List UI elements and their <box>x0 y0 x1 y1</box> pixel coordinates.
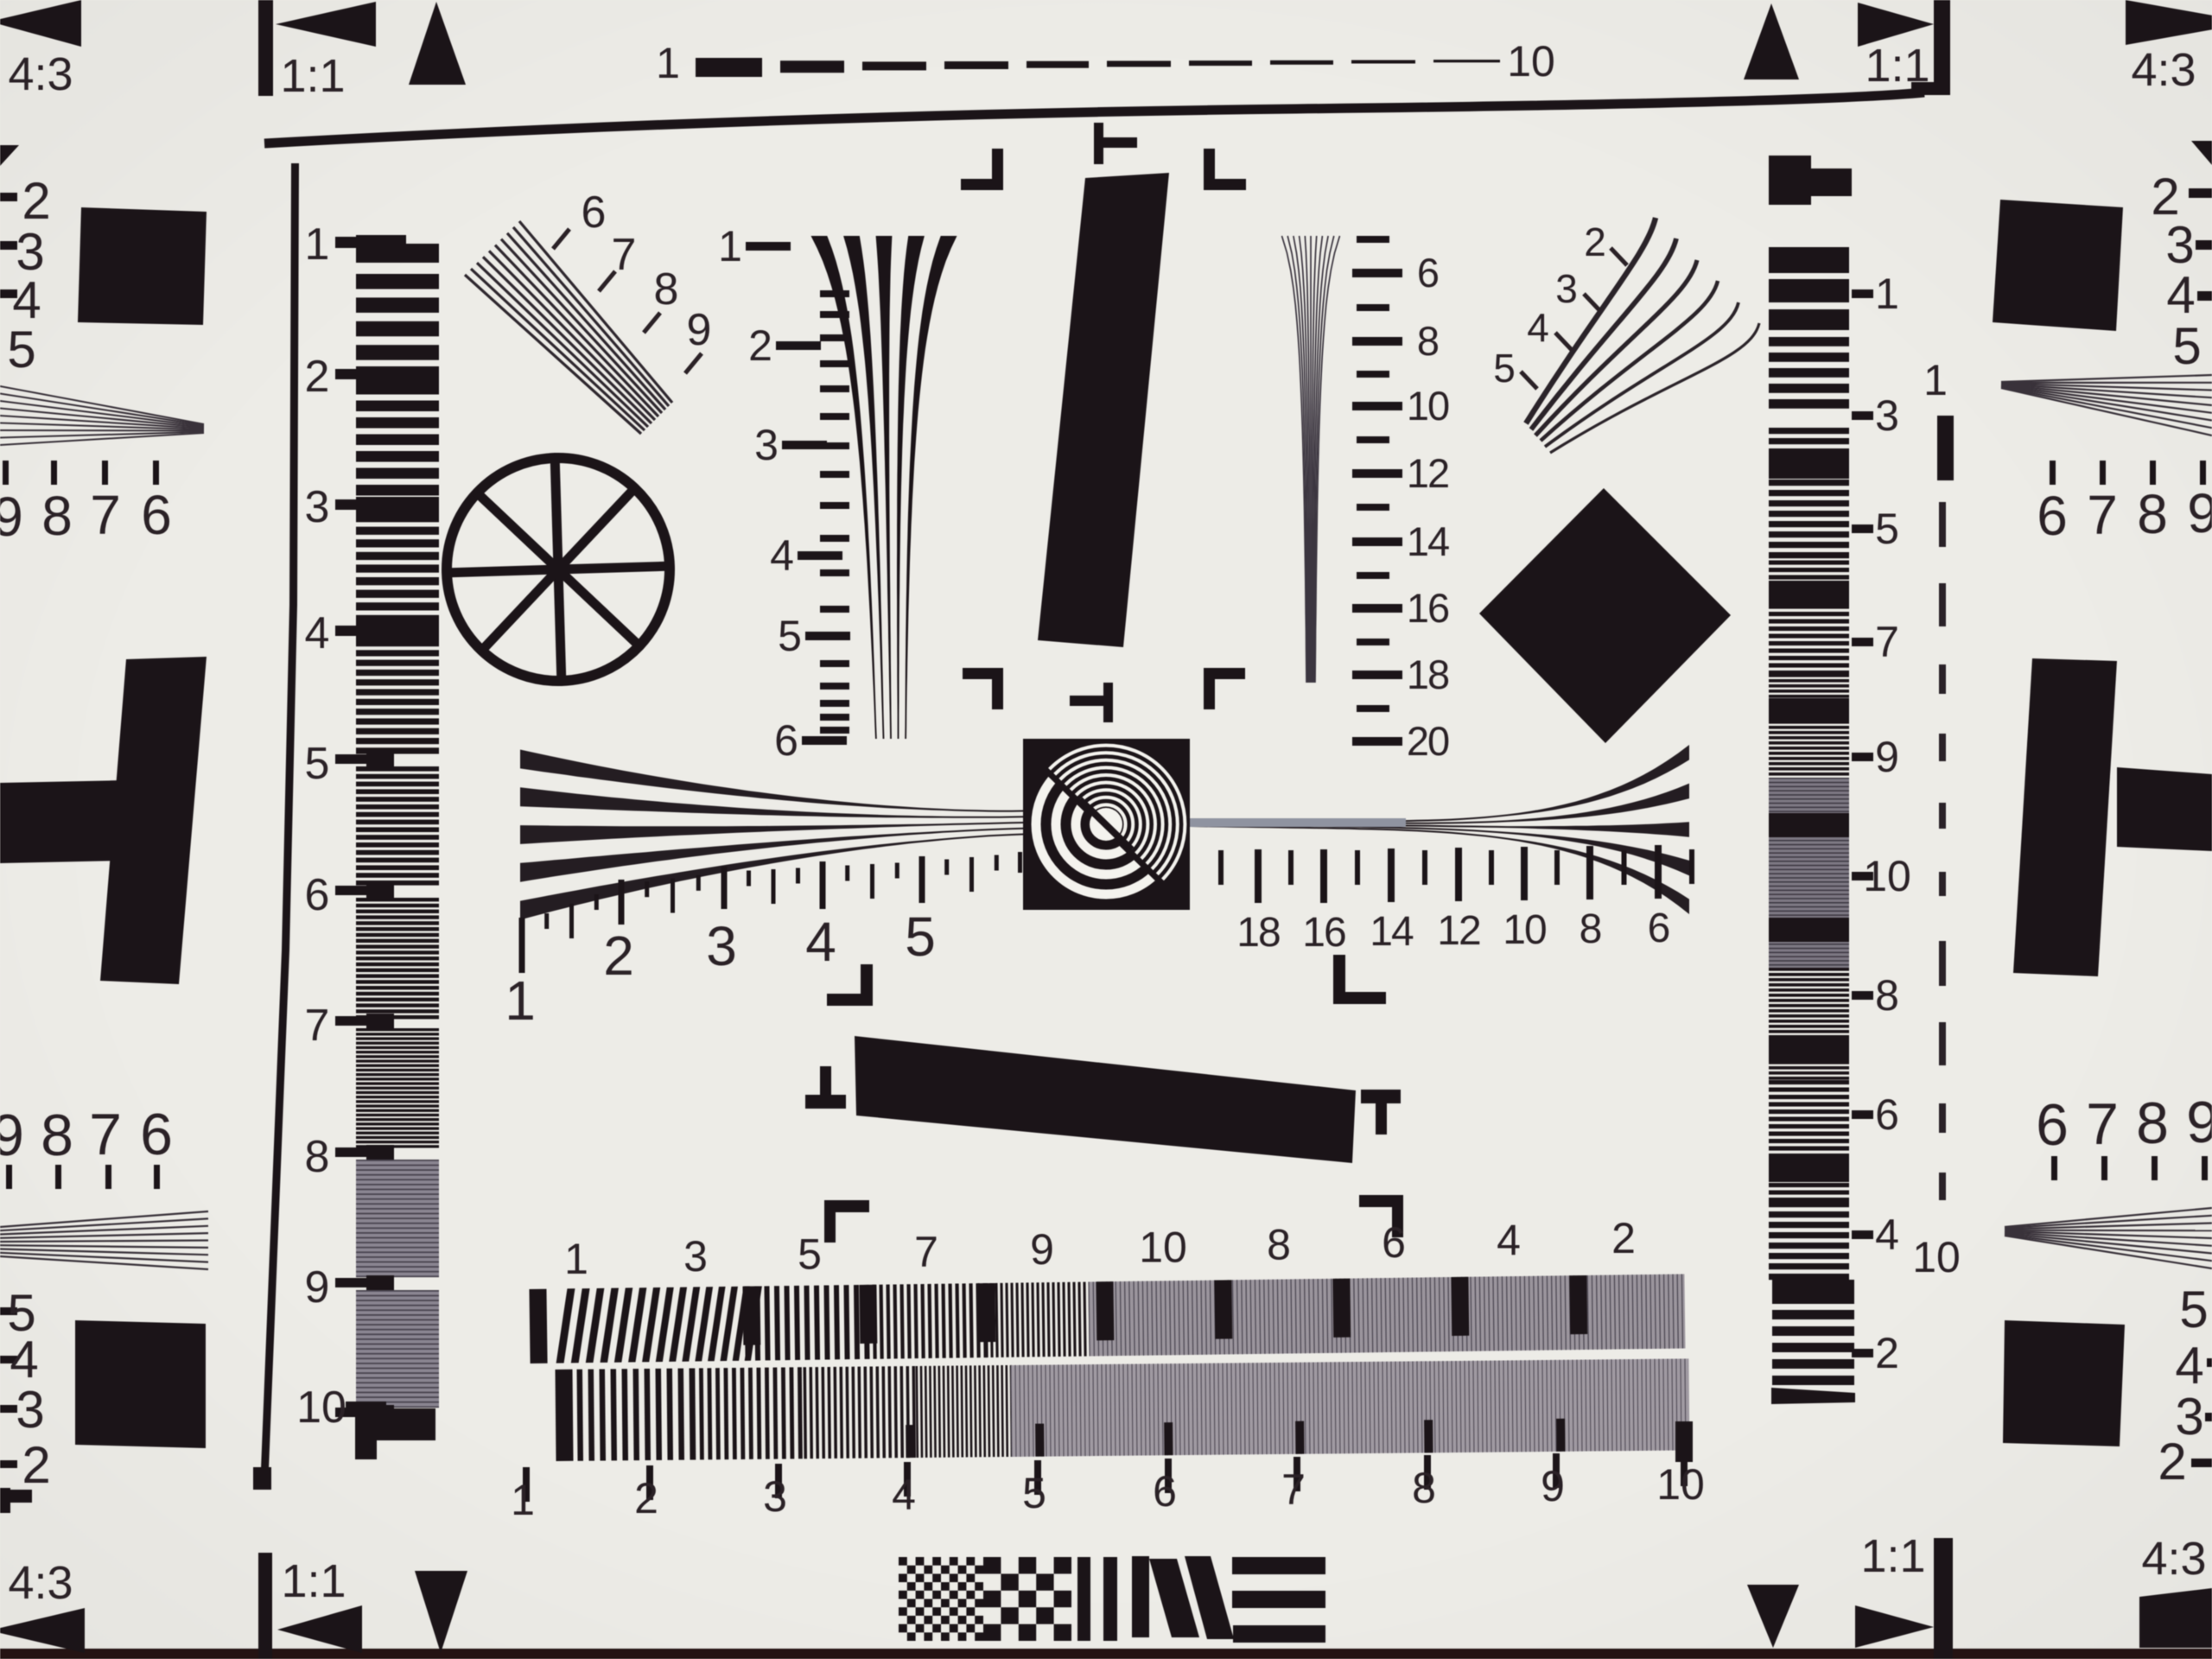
svg-text:5: 5 <box>1022 1469 1046 1517</box>
svg-text:1: 1 <box>505 969 536 1032</box>
svg-text:1: 1 <box>656 39 680 87</box>
svg-text:10: 10 <box>1863 852 1911 900</box>
svg-text:4:3: 4:3 <box>2131 44 2196 96</box>
svg-text:3: 3 <box>763 1472 787 1521</box>
svg-text:2: 2 <box>603 925 634 987</box>
svg-text:6: 6 <box>1382 1218 1406 1267</box>
svg-text:4: 4 <box>305 608 330 658</box>
svg-text:4: 4 <box>770 531 794 580</box>
svg-text:8: 8 <box>41 485 73 547</box>
svg-text:4: 4 <box>892 1471 916 1519</box>
svg-text:1:1: 1:1 <box>1860 1530 1925 1582</box>
svg-text:9: 9 <box>1541 1462 1565 1510</box>
svg-text:5: 5 <box>1875 505 1899 553</box>
svg-text:7: 7 <box>90 484 121 546</box>
svg-text:9: 9 <box>0 486 23 548</box>
svg-text:3: 3 <box>1555 266 1578 311</box>
svg-text:16: 16 <box>1407 585 1449 631</box>
svg-text:12: 12 <box>1437 908 1480 954</box>
svg-text:9: 9 <box>1030 1225 1054 1274</box>
svg-text:10: 10 <box>1139 1223 1187 1271</box>
svg-text:1: 1 <box>718 222 742 270</box>
svg-text:10: 10 <box>1656 1460 1705 1509</box>
svg-text:7: 7 <box>2086 1091 2119 1157</box>
svg-text:2: 2 <box>748 321 772 370</box>
svg-text:4: 4 <box>10 1331 38 1389</box>
svg-text:4: 4 <box>805 911 836 973</box>
svg-text:8: 8 <box>2136 1090 2169 1156</box>
svg-text:7: 7 <box>305 1001 330 1051</box>
svg-text:20: 20 <box>1407 718 1449 764</box>
svg-text:12: 12 <box>1407 450 1448 496</box>
svg-text:9: 9 <box>0 1103 24 1168</box>
svg-text:3: 3 <box>706 915 737 977</box>
svg-text:8: 8 <box>1875 971 1899 1020</box>
svg-text:5: 5 <box>778 612 802 660</box>
svg-text:2: 2 <box>22 172 50 230</box>
svg-text:9: 9 <box>1875 733 1899 781</box>
svg-text:9: 9 <box>305 1262 330 1313</box>
svg-text:14: 14 <box>1407 518 1449 564</box>
svg-text:2: 2 <box>1875 1329 1899 1377</box>
svg-text:6: 6 <box>582 188 607 238</box>
svg-text:8: 8 <box>41 1103 73 1168</box>
svg-text:16: 16 <box>1302 910 1345 956</box>
svg-text:2: 2 <box>1584 219 1606 264</box>
svg-text:2: 2 <box>22 1436 50 1494</box>
svg-text:9: 9 <box>2187 482 2212 544</box>
svg-text:3: 3 <box>305 482 330 532</box>
svg-text:6: 6 <box>1417 250 1439 296</box>
svg-text:6: 6 <box>305 870 330 920</box>
svg-text:3: 3 <box>683 1232 708 1281</box>
svg-text:10: 10 <box>1407 383 1449 429</box>
svg-text:1: 1 <box>564 1235 588 1283</box>
svg-text:4: 4 <box>2166 266 2195 324</box>
svg-text:6: 6 <box>1648 906 1669 951</box>
svg-text:8: 8 <box>1580 906 1601 952</box>
svg-text:10: 10 <box>1912 1233 1961 1281</box>
svg-text:2: 2 <box>2158 1433 2186 1491</box>
svg-text:8: 8 <box>654 264 679 315</box>
svg-text:5: 5 <box>7 321 35 378</box>
svg-text:1: 1 <box>1923 356 1948 404</box>
svg-text:7: 7 <box>2087 484 2118 546</box>
svg-text:7: 7 <box>1875 618 1899 666</box>
svg-text:3: 3 <box>754 421 779 469</box>
svg-text:6: 6 <box>2037 485 2068 547</box>
svg-text:6: 6 <box>140 1102 173 1167</box>
svg-text:5: 5 <box>2179 1281 2208 1338</box>
svg-text:10: 10 <box>296 1382 346 1433</box>
svg-text:5: 5 <box>1493 346 1516 391</box>
svg-text:4: 4 <box>1497 1216 1521 1264</box>
svg-text:2: 2 <box>634 1474 658 1522</box>
svg-text:8: 8 <box>1417 318 1439 364</box>
svg-text:1: 1 <box>511 1476 535 1524</box>
svg-text:3: 3 <box>16 1381 44 1439</box>
svg-text:6: 6 <box>774 716 798 765</box>
svg-text:18: 18 <box>1236 910 1280 956</box>
svg-text:2: 2 <box>305 352 330 402</box>
svg-text:2: 2 <box>1611 1214 1636 1262</box>
svg-text:4: 4 <box>2175 1337 2203 1395</box>
svg-text:5: 5 <box>905 906 936 968</box>
svg-text:1:1: 1:1 <box>280 50 345 102</box>
svg-text:18: 18 <box>1407 652 1449 697</box>
svg-text:4:3: 4:3 <box>2141 1533 2206 1585</box>
svg-text:6: 6 <box>2036 1092 2069 1158</box>
svg-text:14: 14 <box>1370 909 1414 955</box>
svg-text:4: 4 <box>1875 1211 1899 1259</box>
svg-text:5: 5 <box>305 739 330 789</box>
svg-text:6: 6 <box>1875 1090 1899 1139</box>
svg-text:6: 6 <box>141 484 172 546</box>
svg-text:1: 1 <box>1875 270 1899 318</box>
svg-text:10: 10 <box>1507 37 1555 86</box>
svg-text:8: 8 <box>2137 483 2168 545</box>
svg-text:8: 8 <box>1267 1221 1291 1269</box>
svg-text:8: 8 <box>305 1132 330 1182</box>
svg-text:9: 9 <box>687 305 712 355</box>
svg-text:7: 7 <box>1281 1465 1306 1514</box>
svg-text:7: 7 <box>612 230 637 280</box>
svg-text:7: 7 <box>89 1102 122 1167</box>
svg-text:8: 8 <box>1412 1464 1436 1512</box>
svg-text:10: 10 <box>1503 907 1546 953</box>
svg-text:7: 7 <box>914 1228 938 1276</box>
svg-text:4: 4 <box>1527 305 1549 350</box>
svg-text:3: 3 <box>1875 391 1899 440</box>
svg-text:4:3: 4:3 <box>8 1557 73 1609</box>
svg-text:6: 6 <box>1153 1467 1177 1516</box>
svg-text:5: 5 <box>798 1230 822 1279</box>
svg-text:9: 9 <box>2186 1090 2212 1155</box>
svg-text:3: 3 <box>2165 216 2194 274</box>
svg-text:1:1: 1:1 <box>281 1555 346 1607</box>
svg-text:5: 5 <box>2172 317 2201 375</box>
svg-text:4:3: 4:3 <box>8 48 73 100</box>
svg-text:1: 1 <box>305 219 330 270</box>
